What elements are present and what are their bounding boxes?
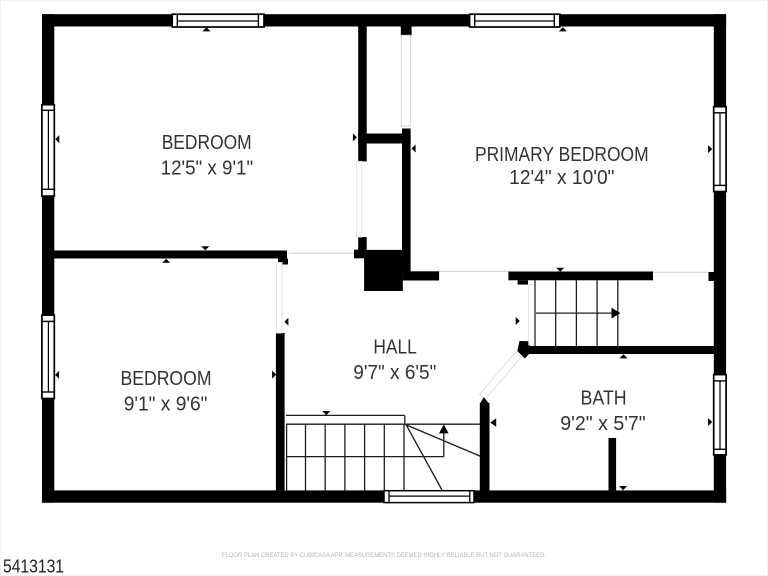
svg-text:9'2" x 5'7": 9'2" x 5'7": [560, 412, 646, 435]
svg-text:HALL: HALL: [373, 335, 416, 358]
svg-text:FLOOR PLAN CREATED BY CUBICASA: FLOOR PLAN CREATED BY CUBICASA APP. MEAS…: [222, 552, 546, 559]
svg-text:5413131: 5413131: [3, 557, 64, 576]
svg-text:9'1" x 9'6": 9'1" x 9'6": [124, 392, 208, 415]
svg-text:BEDROOM: BEDROOM: [162, 131, 252, 154]
svg-text:12'5" x 9'1": 12'5" x 9'1": [161, 157, 254, 180]
svg-text:BEDROOM: BEDROOM: [121, 367, 212, 390]
svg-text:9'7" x 6'5": 9'7" x 6'5": [353, 361, 436, 384]
svg-text:12'4" x 10'0": 12'4" x 10'0": [509, 166, 614, 189]
svg-text:BATH: BATH: [581, 387, 627, 410]
svg-text:PRIMARY BEDROOM: PRIMARY BEDROOM: [475, 143, 649, 166]
